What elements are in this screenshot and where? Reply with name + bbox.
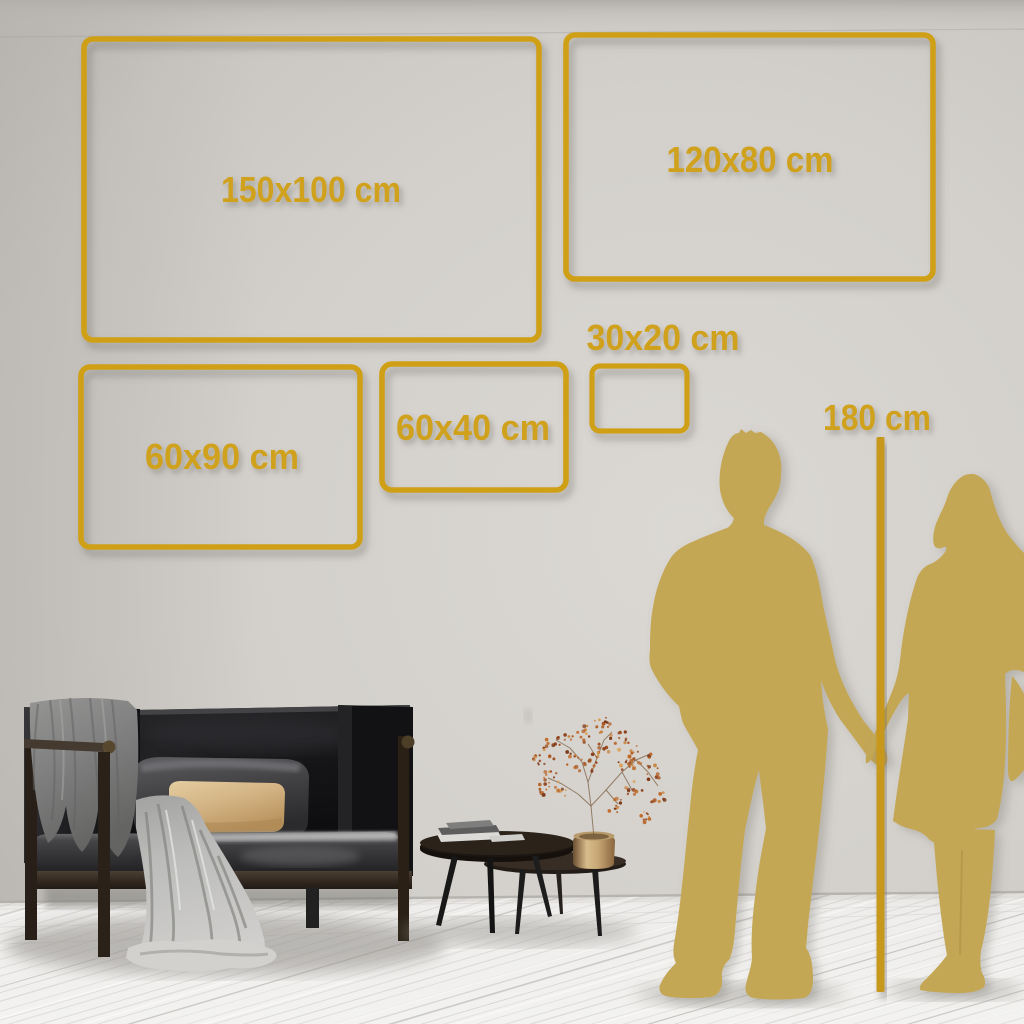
svg-text:60x40 cm: 60x40 cm <box>396 407 550 448</box>
svg-text:120x80 cm: 120x80 cm <box>667 139 834 180</box>
svg-text:150x100 cm: 150x100 cm <box>221 169 401 210</box>
svg-text:60x90 cm: 60x90 cm <box>145 436 299 477</box>
svg-text:180 cm: 180 cm <box>823 397 931 438</box>
svg-text:30x20 cm: 30x20 cm <box>587 317 740 358</box>
